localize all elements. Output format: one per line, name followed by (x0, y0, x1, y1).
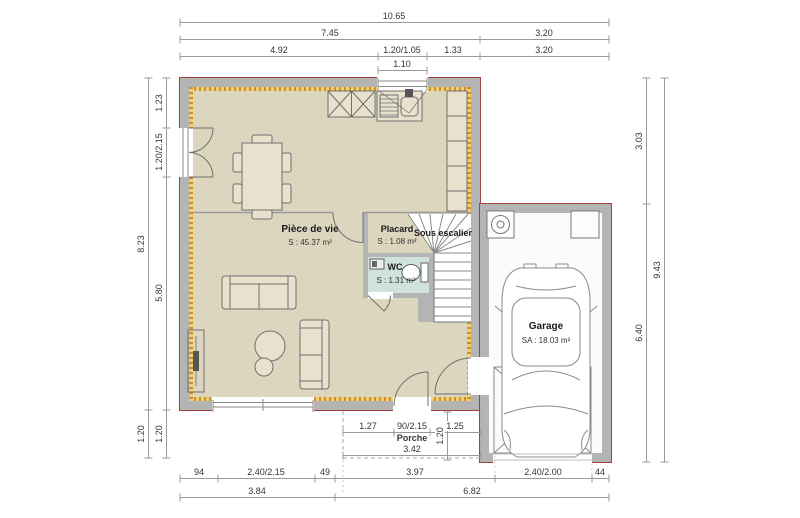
dim-bottom-right-total: 6.82 (463, 486, 481, 496)
dining-set (233, 135, 291, 219)
dim-right-total: 9.43 (652, 261, 662, 279)
dim-right-upper: 3.03 (634, 132, 644, 150)
dim-bottom-left-total: 3.84 (248, 486, 266, 496)
dim-left-seg1: 1.23 (154, 94, 164, 112)
sofa-top (222, 276, 296, 309)
dim-left-total: 8.23 (136, 235, 146, 253)
room-label-wc: WC (388, 262, 403, 273)
dim-porch-depth: 1.20 (435, 425, 445, 447)
floor-plan-canvas: 10.65 7.45 3.20 4.92 1.20/1.05 1.33 3.20… (0, 0, 800, 518)
room-label-living: Pièce de vie (281, 224, 338, 235)
dim-top-rough: 1.10 (393, 59, 411, 69)
water-heater (487, 211, 514, 238)
dim-top-total: 10.65 (383, 11, 406, 21)
dim-left-porch-inner: 1.20 (154, 425, 164, 443)
wc-sink (370, 259, 384, 269)
dim-porch-seg2: 1.25 (444, 421, 466, 431)
dim-left-seg2: 5.80 (154, 284, 164, 302)
dim-bottom-seg3: 3.97 (406, 467, 424, 477)
kitchen-sink (377, 89, 426, 121)
dim-bottom-seg4: 44 (595, 467, 605, 477)
dim-bottom-seg2: 49 (320, 467, 330, 477)
room-label-under-stairs: Sous escalier (414, 228, 472, 239)
garage-access-door (435, 358, 471, 394)
room-area-placard: S : 1.08 m² (377, 237, 416, 246)
dim-porch-width: 3.42 (401, 444, 423, 454)
dim-top-window: 1.20/1.05 (383, 45, 421, 55)
room-area-garage: SA : 18.03 m² (522, 336, 570, 345)
wc-door (368, 296, 391, 312)
room-label-placard: Placard (381, 224, 414, 235)
coffee-table-small (255, 358, 273, 376)
room-area-living: S : 45.37 m² (288, 238, 332, 247)
room-area-wc: S : 1.31 m² (376, 276, 415, 285)
dining-table (242, 143, 282, 210)
kitchen-counter (447, 91, 467, 211)
dim-top-seg2: 1.33 (444, 45, 462, 55)
french-door (189, 128, 213, 177)
dim-bottom-seg1: 94 (194, 467, 204, 477)
porch-label: Porche (395, 433, 430, 443)
entry-door (394, 372, 428, 406)
dim-top-garage: 3.20 (535, 28, 553, 38)
dim-right-lower: 6.40 (634, 324, 644, 342)
dim-top-house: 7.45 (321, 28, 339, 38)
sofa-right (300, 320, 329, 389)
coffee-table-large (255, 331, 285, 361)
room-label-garage: Garage (529, 321, 563, 332)
dim-left-porch-outer: 1.20 (136, 425, 146, 443)
dim-porch-door: 90/2.15 (395, 421, 429, 431)
dim-left-door: 1.20/2.15 (154, 133, 164, 171)
dim-top-garage2: 3.20 (535, 45, 553, 55)
dim-bottom-window: 2.40/2.15 (247, 467, 285, 477)
dim-bottom-garage-door: 2.40/2.00 (524, 467, 562, 477)
door-swings (189, 128, 471, 406)
living-furniture (188, 276, 329, 392)
dim-porch-seg1: 1.27 (357, 421, 379, 431)
dim-top-seg1: 4.92 (270, 45, 288, 55)
car (495, 264, 597, 457)
kitchen-units (328, 89, 467, 211)
utility-box (571, 211, 599, 238)
tv-unit (188, 330, 204, 392)
